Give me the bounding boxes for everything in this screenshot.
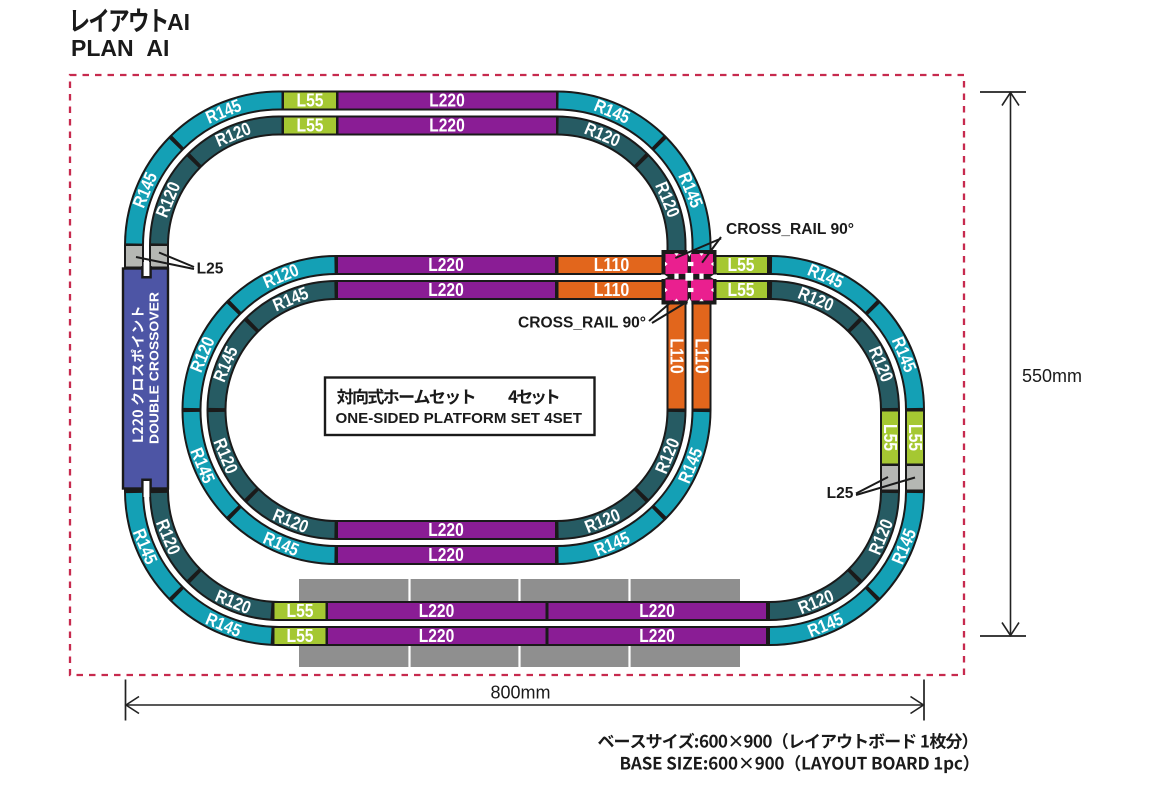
svg-text:AI: AI xyxy=(167,9,190,35)
svg-text:L25: L25 xyxy=(827,485,854,502)
svg-text:L55: L55 xyxy=(905,424,925,451)
svg-text:CROSS_RAIL 90°: CROSS_RAIL 90° xyxy=(726,221,854,238)
svg-text:ONE-SIDED PLATFORM SET 4SE: ONE-SIDED PLATFORM SET 4SET xyxy=(336,410,583,427)
svg-text:L220: L220 xyxy=(428,545,464,565)
svg-text:L220: L220 xyxy=(639,601,675,621)
svg-text:L55: L55 xyxy=(297,91,324,111)
svg-text:L220: L220 xyxy=(428,520,464,540)
svg-text:L220: L220 xyxy=(419,601,455,621)
svg-text:L220: L220 xyxy=(428,255,464,275)
svg-text:L55: L55 xyxy=(297,116,324,136)
svg-text:L110: L110 xyxy=(692,338,712,374)
svg-text:L220: L220 xyxy=(428,280,464,300)
svg-text:PLAN AI: PLAN AI xyxy=(71,35,169,61)
svg-text:L55: L55 xyxy=(728,255,755,275)
svg-text:L220: L220 xyxy=(639,626,675,646)
svg-text:L220: L220 xyxy=(429,91,465,111)
svg-text:L110: L110 xyxy=(594,255,630,275)
svg-text:L55: L55 xyxy=(287,601,314,621)
svg-text:DOUBLE CROSSOVER: DOUBLE CROSSOVER xyxy=(148,292,162,444)
svg-text:CROSS_RAIL 90°: CROSS_RAIL 90° xyxy=(518,315,646,332)
svg-text:L55: L55 xyxy=(880,424,900,451)
svg-text:550mm: 550mm xyxy=(1022,366,1082,386)
svg-text:L220: L220 xyxy=(429,116,465,136)
svg-text:L220: L220 xyxy=(419,626,455,646)
svg-text:L55: L55 xyxy=(728,280,755,300)
svg-text:L110: L110 xyxy=(594,280,630,300)
svg-text:800mm: 800mm xyxy=(490,683,550,703)
svg-text:L110: L110 xyxy=(667,338,687,374)
svg-text:L25: L25 xyxy=(197,261,224,278)
svg-text:L55: L55 xyxy=(287,626,314,646)
